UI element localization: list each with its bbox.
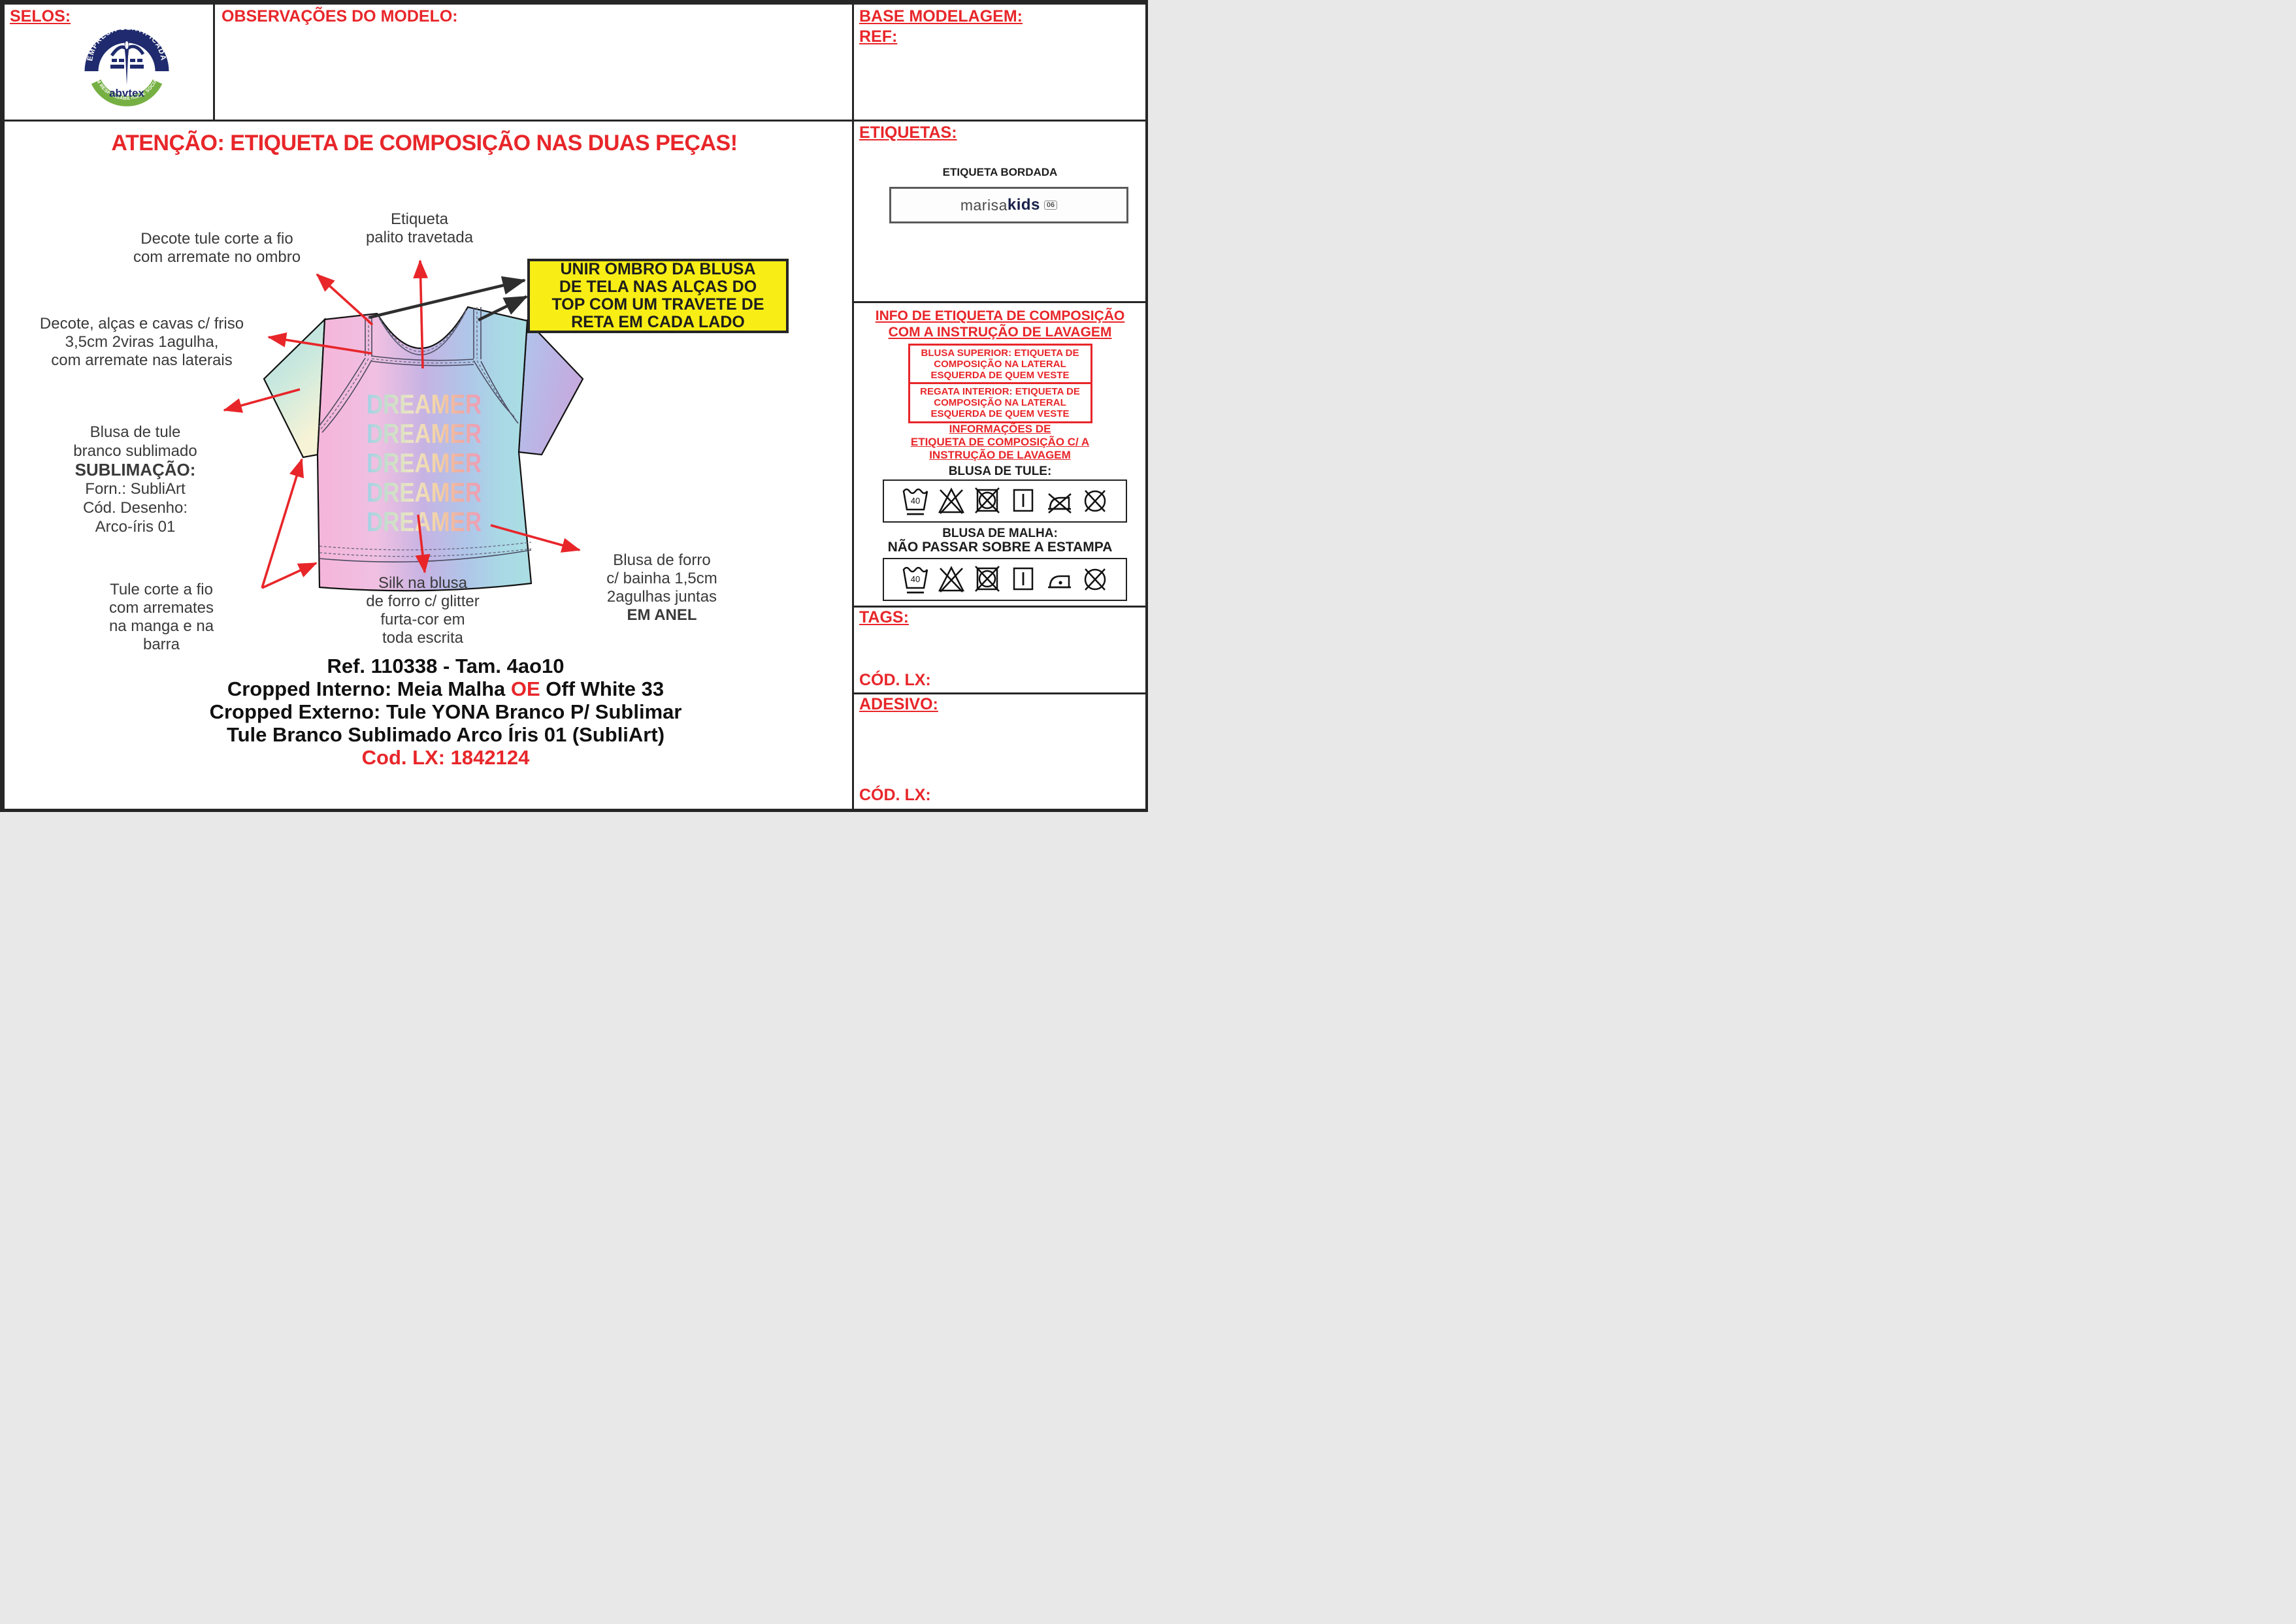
svg-text:40: 40 (910, 496, 919, 506)
info-composicao-cell: INFO DE ETIQUETA DE COMPOSIÇÃO COM A INS… (852, 301, 1148, 608)
blusa-tule-label: BLUSA DE TULE: (854, 464, 1146, 479)
adesivo-label: ADESIVO: (859, 696, 938, 713)
annotation-etiqueta-palito: Etiqueta palito travetada (338, 210, 501, 247)
svg-text:DREAMER: DREAMER (367, 389, 482, 419)
marisa-kids-label: marisakids06 (889, 187, 1128, 223)
brand-badge: 06 (1044, 201, 1057, 210)
yellow-note: UNIR OMBRO DA BLUSA DE TELA NAS ALÇAS DO… (527, 259, 789, 333)
annotation-decote-tule: Decote tule corte a fio com arremate no … (86, 230, 348, 267)
regata-interior-note: REGATA INTERIOR: ETIQUETA DE COMPOSIÇÃO … (908, 382, 1092, 423)
ref-label: REF: (859, 28, 897, 45)
annotation-decote-friso: Decote, alças e cavas c/ friso 3,5cm 2vi… (5, 315, 279, 370)
cod-lx-line: Cod. LX: 1842124 (54, 746, 838, 769)
selos-cell: SELOS: EMPRESA CERTIFICADA EM RESPONSABI… (3, 3, 215, 122)
informacoes-line2: ETIQUETA DE COMPOSIÇÃO C/ A (854, 436, 1146, 449)
ref-line: Ref. 110338 - Tam. 4ao10 (54, 655, 838, 677)
tule-sublimado-line: Tule Branco Sublimado Arco Íris 01 (Subl… (54, 723, 838, 746)
iron-low-icon (1045, 563, 1074, 596)
arrow-tule-manga (262, 459, 302, 588)
thread-left (112, 47, 125, 56)
reference-block: Ref. 110338 - Tam. 4ao10 Cropped Interno… (54, 655, 838, 769)
brand-marisa: marisa (960, 197, 1008, 214)
no-dry-clean-icon (1081, 485, 1109, 517)
arrow-ombro-esq (369, 280, 525, 317)
no-bleach-icon (937, 485, 966, 517)
no-tumble-dry-icon (973, 563, 1002, 596)
dreamer-print: DREAMER DREAMER DREAMER DREAMER DREAMER (367, 389, 482, 537)
svg-text:DREAMER: DREAMER (367, 447, 482, 478)
nao-passar-label: NÃO PASSAR SOBRE A ESTAMPA (854, 540, 1146, 555)
no-iron-icon (1045, 485, 1074, 517)
etiqueta-bordada-label: ETIQUETA BORDADA (854, 166, 1146, 179)
svg-text:DREAMER: DREAMER (367, 477, 482, 508)
informacoes-line3: INSTRUÇÃO DE LAVAGEM (854, 449, 1146, 462)
svg-text:40: 40 (910, 574, 919, 584)
annotation-tule-corte: Tule corte a fio com arremates na manga … (47, 581, 276, 654)
no-dry-clean-icon (1081, 563, 1109, 596)
care-symbols-tule: 40 (883, 479, 1127, 523)
blusa-superior-note: BLUSA SUPERIOR: ETIQUETA DE COMPOSIÇÃO N… (908, 344, 1092, 385)
base-modelagem-label: BASE MODELAGEM: (859, 8, 1023, 25)
no-bleach-icon (937, 563, 966, 596)
line-dry-icon (1009, 563, 1038, 596)
svg-text:abvtex: abvtex (109, 87, 144, 99)
tags-cell: TAGS: CÓD. LX: (852, 606, 1148, 694)
wash-40-icon: 40 (901, 563, 930, 596)
selos-label: SELOS: (10, 8, 71, 25)
techpack-sheet: SELOS: EMPRESA CERTIFICADA EM RESPONSABI… (0, 0, 1148, 812)
base-modelagem-cell: BASE MODELAGEM: REF: (852, 3, 1148, 122)
main-drawing-panel: DREAMER DREAMER DREAMER DREAMER DREAMER (3, 120, 854, 811)
cropped-externo-line: Cropped Externo: Tule YONA Branco P/ Sub… (54, 700, 838, 723)
abvtex-logo-icon: EMPRESA CERTIFICADA EM RESPONSABILIDADE … (83, 22, 171, 113)
blusa-malha-label: BLUSA DE MALHA: (854, 527, 1146, 541)
annotation-blusa-forro: Blusa de forro c/ bainha 1,5cm 2agulhas … (564, 551, 760, 625)
etiquetas-label: ETIQUETAS: (859, 124, 957, 141)
adesivo-cell: ADESIVO: CÓD. LX: (852, 692, 1148, 811)
observacoes-label: OBSERVAÇÕES DO MODELO: (221, 8, 458, 25)
svg-text:DREAMER: DREAMER (367, 418, 482, 449)
annotation-blusa-tule: Blusa de tule branco sublimado SUBLIMAÇÃ… (21, 423, 250, 536)
leader-arrows-black (369, 280, 527, 320)
cropped-interno-line: Cropped Interno: Meia Malha OE Off White… (54, 677, 838, 700)
wash-40-icon: 40 (901, 485, 930, 517)
tags-label: TAGS: (859, 609, 909, 626)
care-symbols-malha: 40 (883, 558, 1127, 601)
informacoes-line1: INFORMAÇÕES DE (854, 423, 1146, 436)
right-sleeve (519, 321, 583, 455)
thread-right (128, 46, 143, 54)
etiquetas-cell: ETIQUETAS: ETIQUETA BORDADA marisakids06 (852, 120, 1148, 303)
info-header-line2: COM A INSTRUÇÃO DE LAVAGEM (854, 325, 1146, 340)
cod-lx-label: CÓD. LX: (859, 671, 931, 690)
annotation-silk: Silk na blusa de forro c/ glitter furta-… (325, 574, 521, 647)
line-dry-icon (1009, 485, 1038, 517)
info-header-line1: INFO DE ETIQUETA DE COMPOSIÇÃO (854, 308, 1146, 324)
no-tumble-dry-icon (973, 485, 1002, 517)
brand-kids: kids (1008, 196, 1040, 214)
svg-text:DREAMER: DREAMER (367, 506, 482, 537)
observacoes-cell: OBSERVAÇÕES DO MODELO: (213, 3, 854, 122)
attention-title: ATENÇÃO: ETIQUETA DE COMPOSIÇÃO NAS DUAS… (18, 131, 831, 156)
cod-lx2-label: CÓD. LX: (859, 786, 931, 805)
